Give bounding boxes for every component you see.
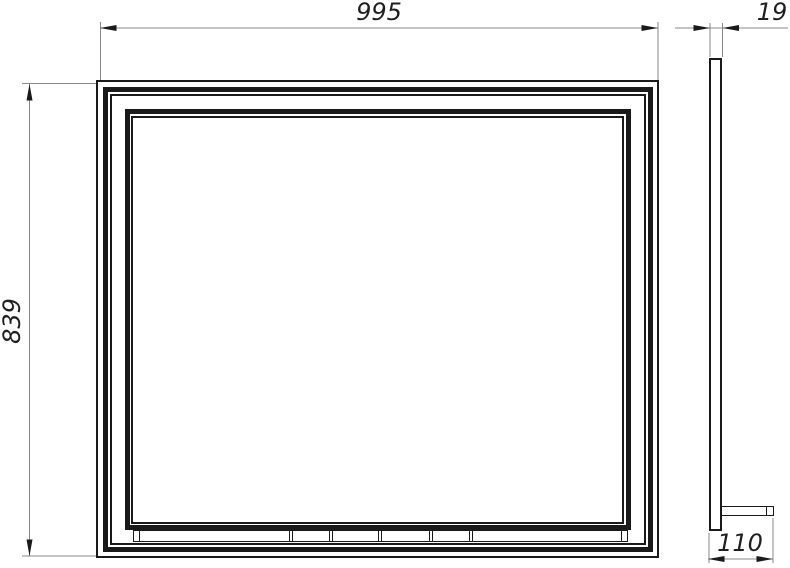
front-view-mirror-opening <box>131 116 624 524</box>
arrowhead <box>27 84 33 101</box>
depth-dimension-label: 19 <box>742 0 790 25</box>
front-shelf-strip <box>133 530 628 543</box>
arrowhead <box>694 25 711 31</box>
shelf-divider <box>329 531 333 542</box>
shelf-divider <box>289 531 293 542</box>
shelf-divider <box>469 531 473 542</box>
technical-drawing-canvas: САНТЕХНИКА ОНЛАЙН <box>0 0 790 568</box>
side-view-shelf <box>721 506 774 516</box>
arrowhead <box>100 25 117 31</box>
arrowhead <box>642 25 659 31</box>
shelf-divider <box>429 531 433 542</box>
width-dimension-label: 995 <box>329 0 429 25</box>
height-dimension-label: 839 <box>0 281 29 361</box>
side-view-panel <box>709 58 723 531</box>
height-dimension <box>22 84 96 557</box>
arrowhead <box>27 540 33 557</box>
shelf-depth-dimension-label: 110 <box>690 530 790 556</box>
depth-dimension <box>675 23 788 57</box>
width-dimension <box>100 22 658 80</box>
shelf-end-cap-left <box>134 531 140 542</box>
side-shelf-end-cap <box>766 507 773 515</box>
shelf-end-cap-right <box>621 531 627 542</box>
arrowhead <box>723 25 740 31</box>
shelf-divider <box>378 531 382 542</box>
